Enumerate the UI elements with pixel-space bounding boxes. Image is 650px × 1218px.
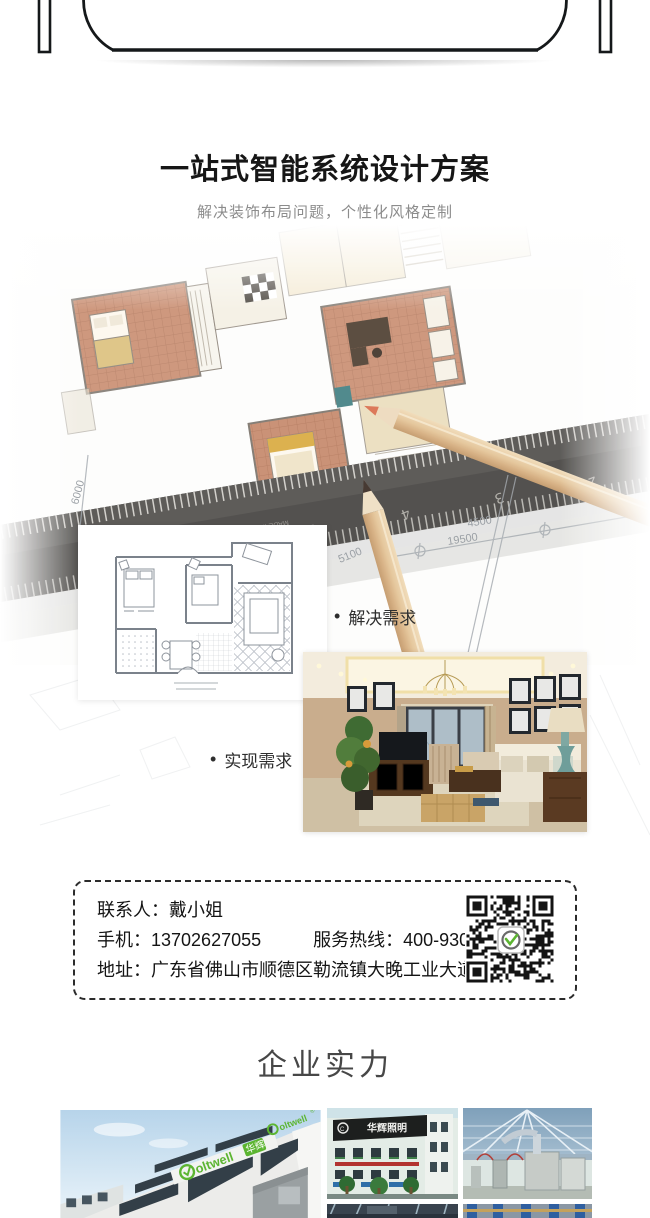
door-arc-drawing [0, 0, 650, 60]
contact-phone-row: 手机： 13702627055 服务热线： 400-930-3600 [97, 925, 515, 955]
warehouse-racks-photo-partial [463, 1204, 592, 1218]
top-blueprint-strip [0, 0, 650, 60]
bullet-solve-demand: • 解决需求 [334, 604, 416, 629]
section-title: 一站式智能系统设计方案 [0, 146, 650, 188]
contact-address-row: 地址： 广东省佛山市顺德区勒流镇大晚工业大道3号 [97, 955, 515, 985]
bullet-solve-label: 解决需求 [348, 604, 416, 629]
contact-lines: 联系人： 戴小姐 手机： 13702627055 服务热线： 400-930-3… [97, 895, 515, 985]
address-value: 广东省佛山市顺德区勒流镇大晚工业大道3号 [151, 955, 503, 985]
bullet-realize-demand: • 实现需求 [210, 747, 292, 772]
bullet-dot: • [210, 751, 216, 768]
workshop-photo-partial [327, 1204, 458, 1218]
red-banner [335, 1162, 419, 1166]
hotline-label: 服务热线： [313, 925, 403, 955]
mobile-value: 13702627055 [151, 925, 261, 955]
qr-code [465, 893, 557, 987]
qr-finder-tr [533, 896, 554, 917]
floorplan-card [78, 525, 327, 700]
section-subtitle: 解决装饰布局问题，个性化风格定制 [0, 201, 650, 222]
contact-card: 联系人： 戴小姐 手机： 13702627055 服务热线： 400-930-3… [73, 880, 577, 1000]
company-building-photo: oltwell 华辉 oltwell ® [58, 1110, 323, 1218]
sign-text: 华辉照明 [367, 1122, 407, 1135]
living-room-photo [303, 652, 587, 832]
strip-shadow [18, 60, 632, 70]
huahui-building-photo: C 华辉照明 [327, 1108, 458, 1199]
strength-heading: 企业实力 [0, 1040, 650, 1084]
qr-center-logo [498, 927, 524, 953]
person-label: 联系人： [97, 895, 169, 925]
qr-finder-bl [467, 962, 488, 983]
factory-interior-photo [463, 1108, 592, 1199]
svg-text:C: C [340, 1127, 345, 1133]
bullet-realize-label: 实现需求 [224, 747, 292, 772]
promo-page: 一站式智能系统设计方案 解决装饰布局问题，个性化风格定制 [0, 0, 650, 1218]
contact-person-row: 联系人： 戴小姐 [97, 895, 515, 925]
person-value: 戴小姐 [169, 895, 223, 925]
spacer [261, 925, 313, 955]
address-label: 地址： [97, 955, 151, 985]
qr-finder-tl [467, 896, 488, 917]
mobile-label: 手机： [97, 925, 151, 955]
bullet-dot: • [334, 608, 340, 625]
